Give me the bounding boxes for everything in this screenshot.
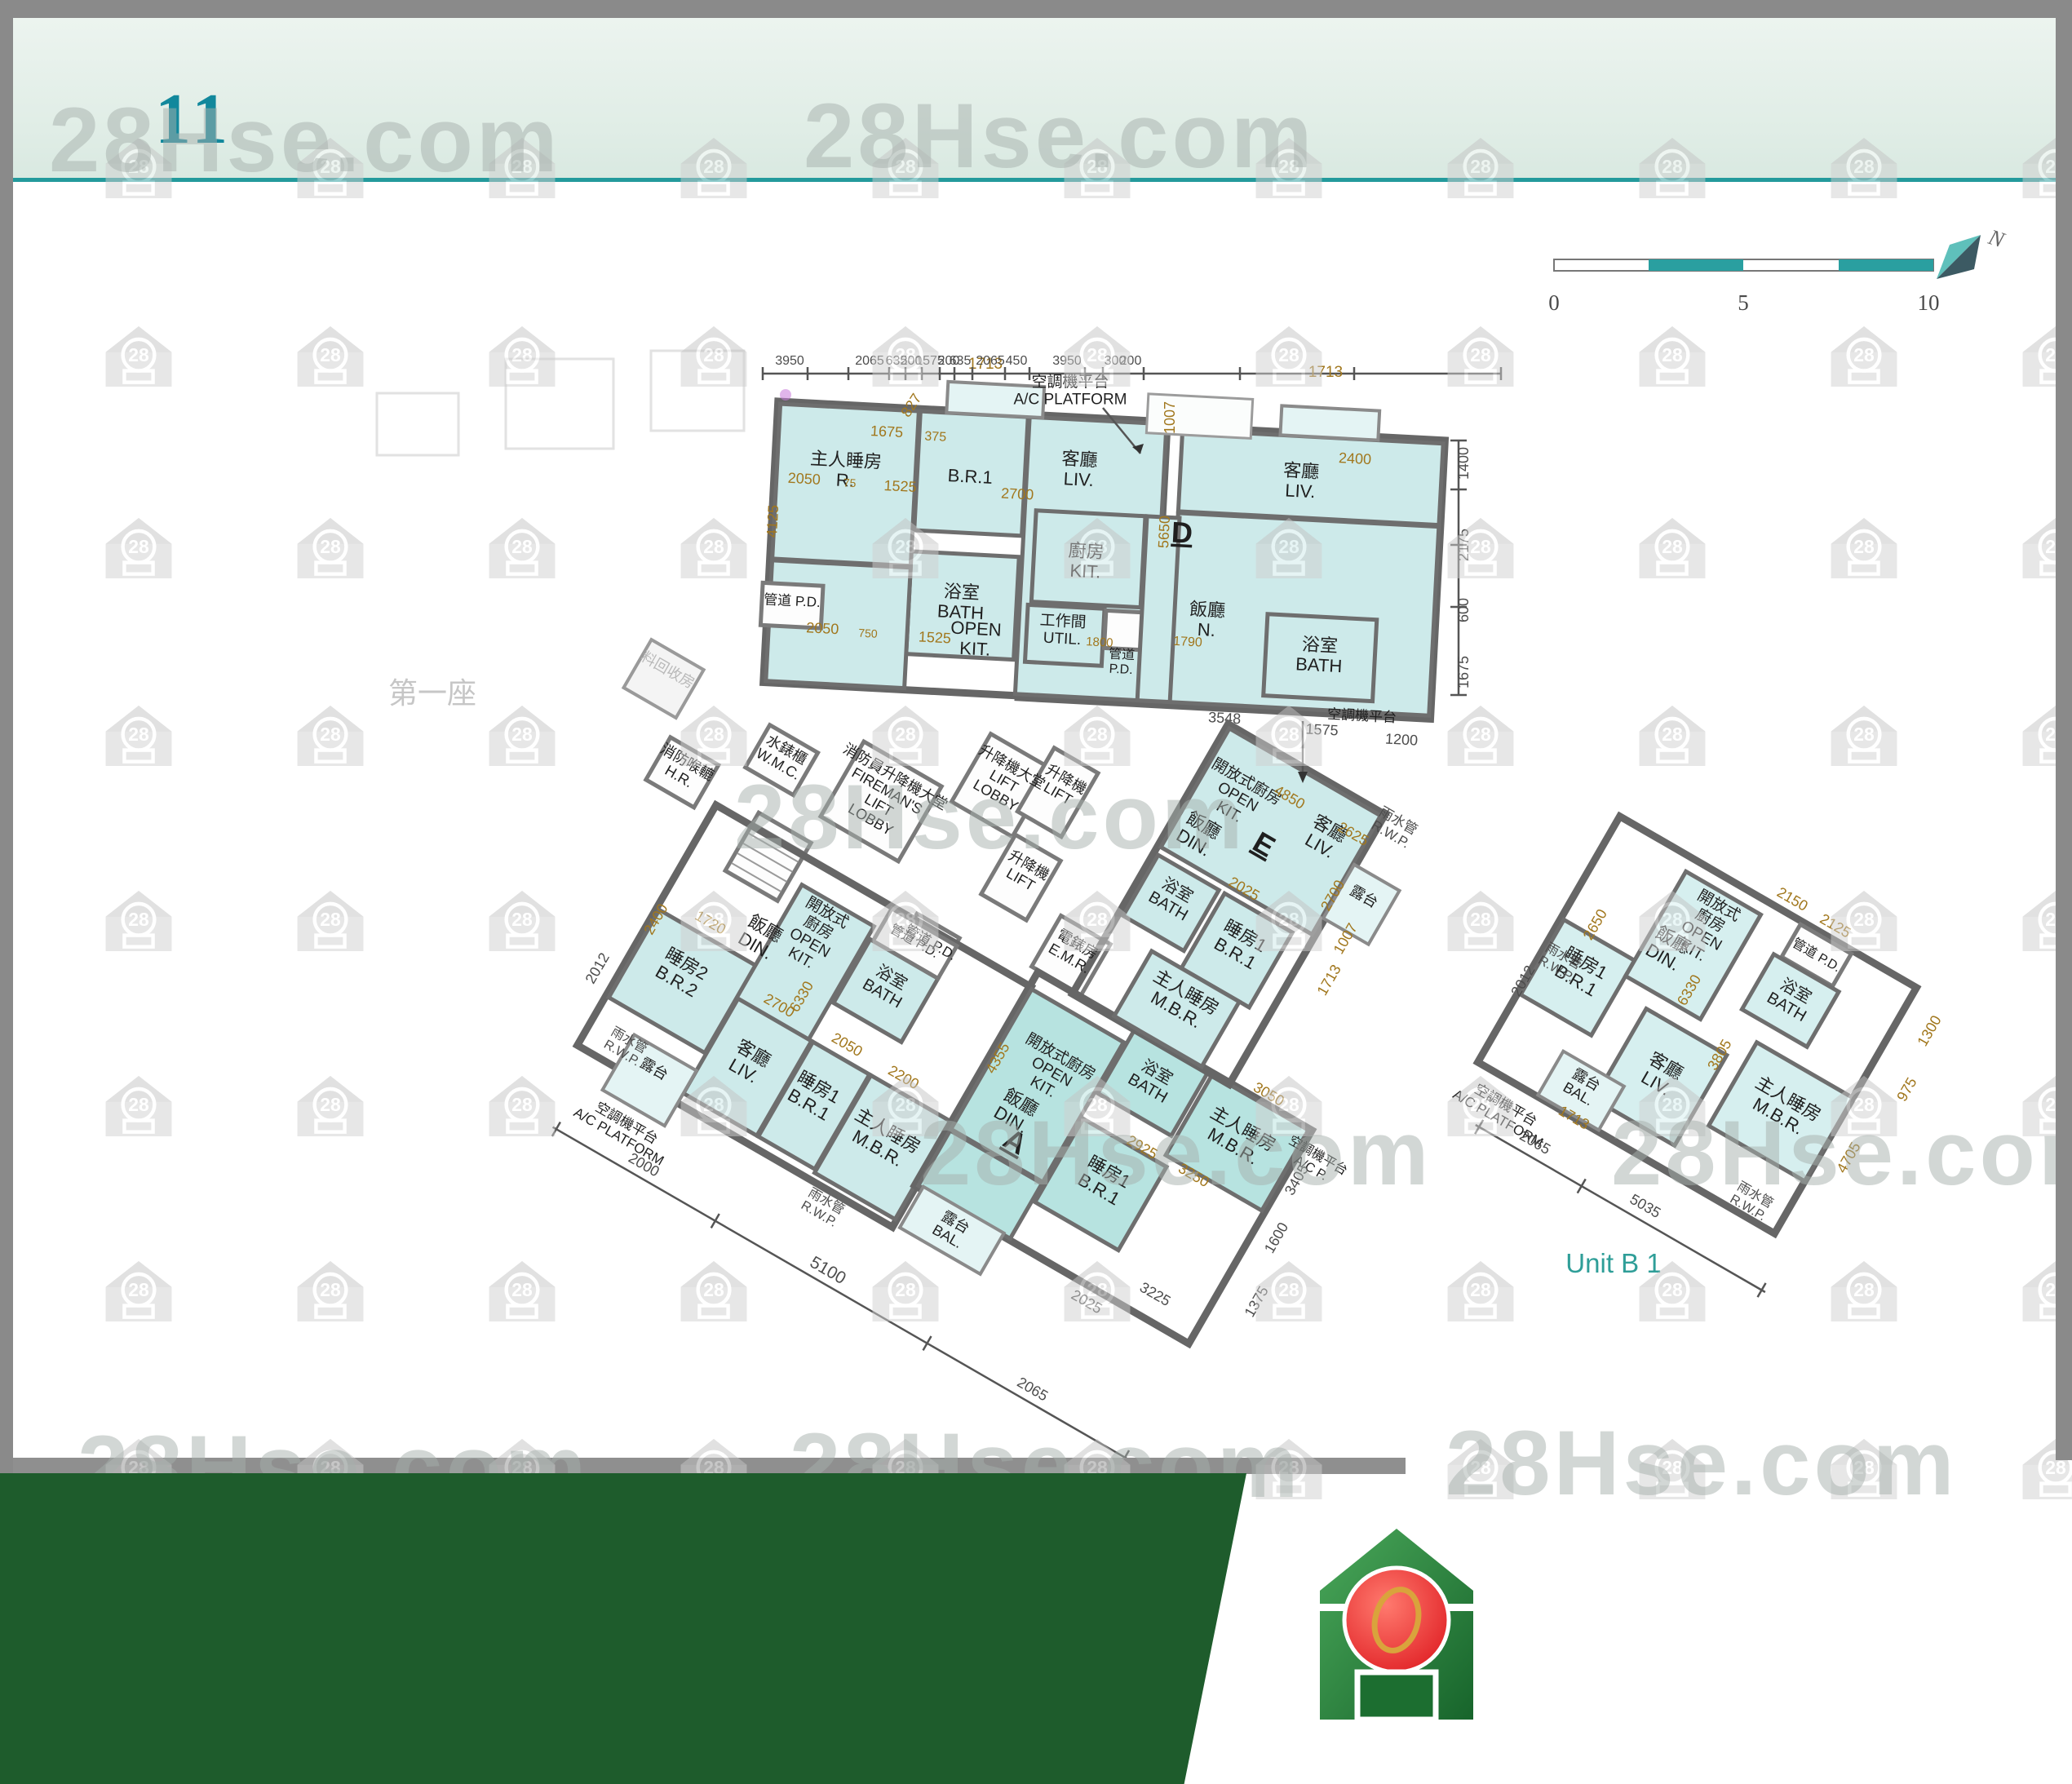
dim: 1525 [883, 477, 917, 495]
dim: 2650 [1580, 906, 1610, 943]
dim: 375 [924, 429, 947, 444]
room-pd-d: 管道P.D. [1108, 647, 1136, 678]
room-br1-topleft: B.R.1 [947, 465, 993, 488]
unit-b-plan: 睡房1B.R.1飯廳DIN.開放式廚房OPENKIT.管道 P.D.浴室BATH… [1437, 791, 1972, 1313]
callout-ac-platform-top: 空調機平台A/C PLATFORM [1014, 373, 1127, 408]
top-dim-chain-value: 2065 [976, 354, 1005, 368]
top-dim-chain-value: 3950 [1052, 354, 1082, 368]
top-dim-chain-value: 200 [1120, 354, 1142, 368]
page-border-right [2056, 18, 2072, 1460]
room-pd-topleft: 管道 P.D. [764, 591, 821, 610]
brochure-page: 11 主人睡房R.B.R.1浴 [0, 0, 2072, 1784]
dim: 1675 [870, 423, 903, 440]
top-wing-units: 主人睡房R.B.R.1浴室BATH客廳LIV.OPENKIT.管道 P.D.廚房… [755, 373, 1447, 750]
room-liv-topleft: 客廳LIV. [1060, 448, 1099, 490]
dim: 2700 [1001, 485, 1034, 502]
dim: 2012 [582, 950, 613, 987]
room-liv-d: 客廳LIV. [1282, 460, 1320, 502]
page-border-top [0, 0, 2072, 18]
dim: 1300 [1914, 1012, 1944, 1049]
dim: 4125 [764, 504, 781, 538]
dim: 975 [1893, 1074, 1919, 1104]
room-util-d: 工作間UTIL. [1038, 611, 1087, 649]
dim: 1375 [1241, 1283, 1271, 1320]
top-dim-chain-value: 2065 [855, 354, 884, 368]
dim: 4705 [1833, 1140, 1863, 1176]
dim: 2175 [1455, 529, 1472, 561]
room-bath-d: 浴室BATH [1295, 634, 1344, 677]
dim: 1400 [1455, 447, 1472, 480]
dim: 1525 [918, 628, 951, 646]
dim: 5650 [1155, 515, 1173, 548]
dim: 3225 [1137, 1279, 1174, 1309]
scale-bar: 0 5 10 [1548, 259, 1939, 315]
rwp-b2: 雨水管R.W.P. [1728, 1179, 1777, 1224]
top-dim-chain-value: 450 [1006, 354, 1028, 368]
28hse-logo-icon [1315, 1524, 1478, 1724]
dim: 1713 [1314, 962, 1344, 998]
stray-mark [780, 389, 791, 401]
page-border-left [0, 0, 13, 1473]
dim: 1007 [1162, 401, 1178, 434]
dim: 2065 [1014, 1374, 1051, 1404]
block-label: 第一座 [388, 676, 476, 710]
faded-plan-fragments [377, 351, 744, 455]
dim: 2400 [1339, 449, 1372, 467]
scale-tick-10: 10 [1918, 290, 1940, 315]
dim: 2050 [787, 470, 821, 488]
dim: 5100 [807, 1253, 849, 1288]
dim: 1600 [1261, 1220, 1291, 1256]
dim: 600 [1455, 598, 1472, 622]
north-arrow-icon: N [1937, 224, 2008, 279]
dim: 1713 [1308, 364, 1343, 381]
unit-letter-d: D [1171, 516, 1193, 550]
top-dim-chain-value: 635 [950, 354, 972, 368]
north-label: N [1985, 224, 2008, 253]
scale-tick-0: 0 [1548, 290, 1560, 315]
dim: 1790 [1173, 635, 1203, 650]
dim: 750 [858, 626, 878, 640]
dim: 2050 [806, 619, 839, 637]
top-dim-chain-value: 3950 [775, 354, 804, 368]
rwp-c2: 雨水管R.W.P. [799, 1185, 848, 1230]
scale-tick-5: 5 [1738, 290, 1749, 315]
dim: 1575 [1305, 720, 1339, 738]
footer-green-band [0, 1473, 1246, 1784]
dim: 1200 [1385, 731, 1419, 749]
dim: 1800 [1086, 635, 1113, 650]
dim: 1675 [1455, 656, 1472, 688]
footer-gray-strip [0, 1458, 1406, 1474]
unit-b-caption: Unit B 1 [1565, 1248, 1661, 1278]
room-kit-d: 廚房KIT. [1067, 540, 1105, 582]
dim: 75 [843, 476, 857, 489]
